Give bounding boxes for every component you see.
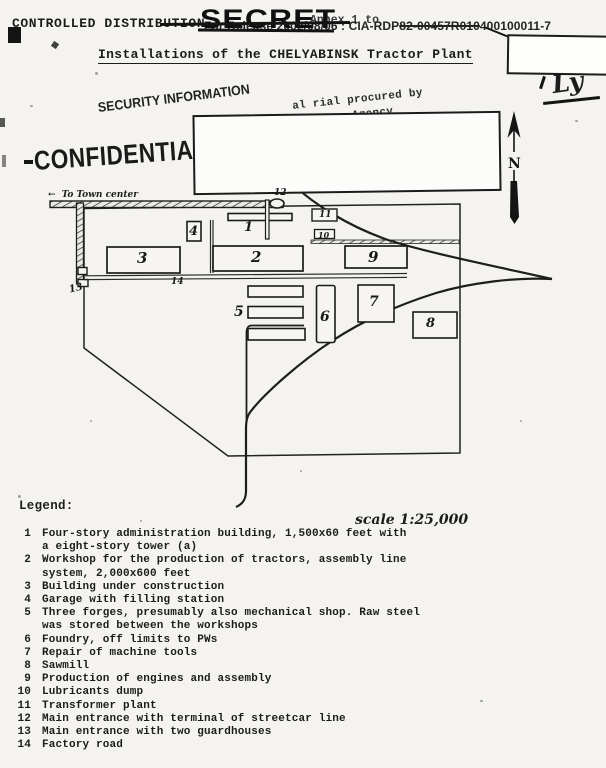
map-label-5: 5 (234, 305, 244, 319)
guardhouse-north (78, 268, 87, 275)
handwritten-mark: Ly (550, 66, 585, 99)
factory-road (84, 277, 407, 279)
building-1-tower (266, 200, 270, 239)
map-label-14: 14 (171, 278, 184, 287)
building-5-forge-2 (248, 307, 303, 319)
building-1-admin (228, 214, 292, 221)
map-label-4: 4 (189, 225, 198, 238)
map-label-3: 3 (137, 251, 147, 266)
building-5-forge-1 (248, 286, 303, 297)
map-label-7: 7 (369, 295, 379, 309)
map-label-6: 6 (320, 310, 330, 324)
map-label-10: 10 (318, 231, 329, 239)
north-label: N (508, 156, 521, 172)
north-arrow: N (508, 111, 522, 224)
redaction-box-center (192, 111, 501, 195)
building-5-forge-3 (248, 329, 305, 341)
document-page: CONTROLLED DISTRIBUTION Annex 1 to For R… (0, 0, 606, 768)
map-label-1: 1 (244, 221, 253, 234)
streetcar-road (50, 201, 283, 208)
to-town-center-label: ← To Town center (48, 190, 138, 200)
map-label-2: 2 (251, 250, 261, 265)
map-label-9: 9 (368, 250, 378, 265)
internal-road-east (311, 240, 459, 244)
map-label-8: 8 (426, 317, 435, 330)
streetcar-terminal-loop (270, 199, 284, 208)
map-label-12: 12 (274, 189, 287, 198)
left-arrow-icon: ← (48, 190, 56, 200)
map-label-11: 11 (319, 211, 332, 220)
